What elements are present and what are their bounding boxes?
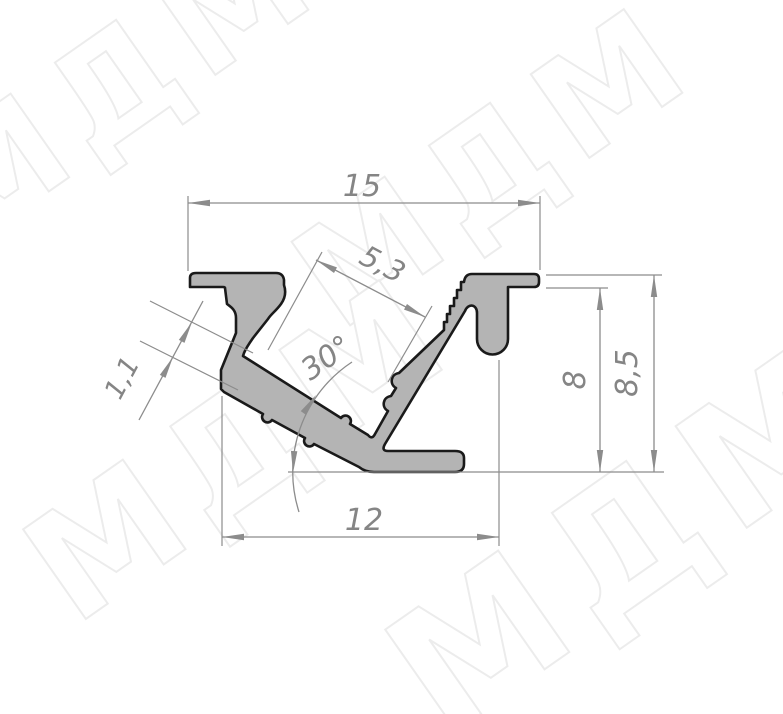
dimension-arrow <box>651 275 657 297</box>
dimension-label-inner-height: 8 <box>558 370 593 389</box>
drawing-canvas: МДМ МДМ МДМ МДМ 15 5,3 30° <box>0 0 783 714</box>
dimension-label-overall-height: 8,5 <box>610 349 645 397</box>
dimension-arrow <box>179 320 195 342</box>
technical-drawing: МДМ МДМ МДМ МДМ 15 5,3 30° <box>0 0 783 714</box>
dimension-arrow <box>597 288 603 310</box>
dimension-label-wall-thickness: 1,1 <box>99 352 147 404</box>
dimension-arrow <box>188 200 210 206</box>
dimension-label-top-width: 15 <box>343 169 381 204</box>
dimension-arrow <box>160 355 176 377</box>
dimension-label-bottom-width: 12 <box>345 503 383 538</box>
